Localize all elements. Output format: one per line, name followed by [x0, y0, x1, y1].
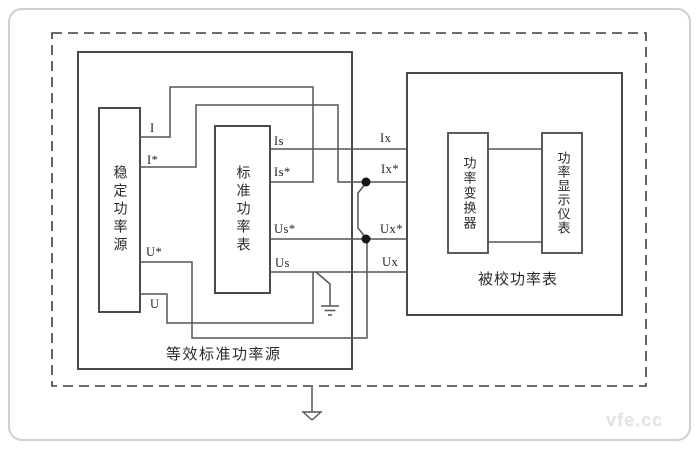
terminal-label-i: I: [150, 122, 155, 135]
tested-power-meter-label: 被校功率表: [478, 272, 558, 287]
arrow-head-icon: [303, 412, 321, 420]
watermark: vfe.cc: [606, 410, 663, 431]
junction-dot-lower: [362, 235, 371, 244]
ground-symbol: [316, 272, 339, 315]
standard-power-meter-label: 标准功率表: [215, 126, 270, 293]
terminal-label-us-star: Us*: [274, 223, 296, 236]
equivalent-standard-source-label: 等效标准功率源: [166, 347, 282, 362]
terminal-label-i-star: I*: [147, 154, 158, 167]
stable-power-source-label: 稳定功率源: [99, 108, 140, 312]
power-converter-label: 功率变换器: [448, 133, 488, 253]
terminal-label-is-star: Is*: [274, 166, 291, 179]
junction-dot-upper: [362, 178, 371, 187]
terminal-label-us: Us: [275, 257, 290, 270]
terminal-label-ux-star: Ux*: [380, 223, 403, 236]
jumper-wire: [358, 183, 366, 238]
terminal-label-ix: Ix: [380, 132, 391, 145]
power-display-label: 功率显示仪表: [542, 133, 582, 253]
terminal-label-is: Is: [274, 135, 284, 148]
terminal-label-ux: Ux: [382, 256, 398, 269]
terminal-label-u: U: [150, 298, 160, 311]
calibration-schematic: 稳定功率源 标准功率表 功率变换器 功率显示仪表 等效标准功率源 被校功率表 I…: [0, 0, 700, 451]
shield-arrow: [303, 387, 321, 420]
terminal-label-ix-star: Ix*: [381, 163, 399, 176]
terminal-label-u-star: U*: [146, 246, 162, 259]
